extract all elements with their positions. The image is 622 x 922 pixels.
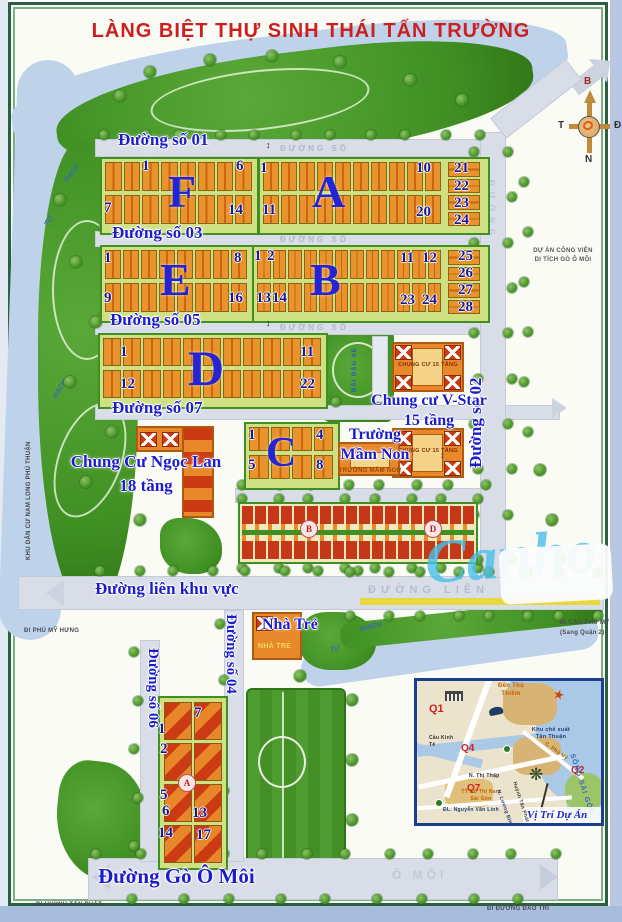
lot-number: 22 [300, 377, 315, 392]
tree-icon [276, 894, 286, 904]
tree-icon [503, 510, 513, 520]
x-motif-icon [395, 345, 412, 360]
villa-lot [366, 283, 380, 312]
villa-lot [223, 370, 241, 398]
villa-lot [141, 250, 157, 279]
dimension-mark-icon: ↕ [440, 450, 445, 460]
villa-lot [213, 283, 229, 312]
villa-lot [366, 250, 380, 279]
park-project-label-1: DỰ ÁN CÔNG VIÊN [528, 248, 598, 256]
lot-number: 12 [120, 377, 135, 392]
townhouse-row-badge: B [300, 520, 318, 538]
villa-lot [283, 370, 301, 398]
lot-number: 10 [416, 161, 431, 176]
villa-lot [389, 162, 405, 191]
villa-lot [217, 162, 234, 191]
tree-icon [208, 566, 218, 576]
parking-label: BÃI ĐẬU XE [352, 347, 360, 392]
lot-number: 11 [262, 203, 276, 218]
lot-number: 11 [300, 345, 314, 360]
villa-lot [103, 338, 121, 366]
villa-lot [198, 162, 215, 191]
villa-lot [353, 162, 369, 191]
nha-tre-caption: NHÀ TRẺ [258, 642, 291, 651]
road-lien-label: Đường liên khu vực [95, 579, 239, 599]
villa-lot [195, 283, 211, 312]
exit-cau-phu-my-label: ĐI CẦU PHÚ MỸ [560, 620, 610, 628]
tree-icon [506, 849, 516, 859]
exit-phu-my-hung-label: ĐI PHÚ MỸ HƯNG [24, 628, 79, 636]
compass-north-label: B [584, 76, 591, 87]
lot-number: 13 [256, 291, 271, 306]
exit-arrow-go-east [540, 864, 558, 890]
road-05-label: Đường số 05 [110, 310, 200, 330]
tree-icon [417, 894, 427, 904]
villa-lot [164, 702, 192, 740]
lot-number: 2 [267, 249, 275, 264]
inset-title: Vị Trí Dự Án [527, 809, 587, 821]
road-go-o-moi-label: Đường Gò Ô Môi [98, 864, 255, 889]
villa-lot [123, 283, 139, 312]
villa-lot [143, 338, 161, 366]
block-letter: C [266, 432, 296, 474]
compass-west-label: T [558, 120, 564, 131]
lot-number: 8 [234, 251, 242, 266]
tree-icon [370, 563, 380, 573]
villa-lot [124, 162, 141, 191]
inset-location-map: ★ ❋ Q1 Q4 Q7 Q2 Đền Thủ Thiêm Khu chế xu… [414, 678, 604, 826]
block-letter: F [168, 169, 196, 215]
villa-lot [281, 195, 297, 224]
inset-node-icon [503, 745, 511, 753]
tree-icon [415, 567, 425, 577]
x-motif-icon [395, 375, 412, 390]
lot-number: 1 [260, 161, 268, 176]
sports-field-line [282, 692, 284, 860]
mam-non-caption: TRƯỜNG MẦM NON [330, 468, 410, 476]
lot-number: 7 [104, 201, 112, 216]
tree-icon [400, 130, 410, 140]
inset-district-q1: Q1 [429, 703, 444, 715]
tree-icon [454, 611, 464, 621]
exit-cau-phu-my-sub: (Sang Quận 2) [560, 630, 605, 638]
tree-icon [133, 696, 143, 706]
nha-tre-label: Nhà Trẻ [262, 616, 318, 634]
tree-icon [507, 374, 517, 384]
tree-icon [325, 130, 335, 140]
tree-icon [443, 480, 453, 490]
villa-lot [283, 338, 301, 366]
tree-icon [469, 894, 479, 904]
dimension-mark-icon: ↕ [266, 318, 271, 328]
ngoc-lan-building-wing [182, 426, 214, 518]
villa-lot [198, 195, 215, 224]
villa-lot [381, 283, 395, 312]
villa-lot [389, 195, 405, 224]
tree-icon [415, 611, 425, 621]
road-c-south [235, 488, 488, 503]
lot-number: 12 [422, 251, 437, 266]
tree-icon [168, 566, 178, 576]
road-04-label: Đường số 04 [222, 614, 239, 694]
villa-block-a: A110112021222324 [258, 157, 490, 235]
tree-icon [344, 480, 354, 490]
v-star-label: Chung cư V-Star [366, 392, 492, 410]
road-01-surface-label: ĐƯỜNG SỐ [280, 144, 349, 153]
lot-number: 26 [458, 266, 473, 281]
tree-icon [384, 567, 394, 577]
villa-lot [288, 250, 302, 279]
exit-arrow-west [46, 580, 64, 606]
compass: B N T Đ [566, 88, 614, 166]
mam-non-label-1: Trường [330, 426, 420, 444]
villa-lot [263, 338, 281, 366]
ngoc-lan-label: Chung Cư Ngọc Lan [66, 452, 226, 472]
villa-block-a-south: A71256131417 [158, 696, 228, 870]
mam-non-label-2: Mầm Non [322, 446, 428, 464]
lot-number: 2 [160, 742, 168, 757]
v-star-building-caption: CHUNG CƯ 15 TẦNG [388, 362, 468, 369]
dimension-mark-icon: ↕ [266, 140, 271, 150]
lot-number: 7 [194, 706, 202, 721]
inset-project-tree-icon: ❋ [529, 765, 543, 785]
villa-lot [124, 195, 141, 224]
ngoc-lan-floors-label: 18 tầng [66, 476, 226, 496]
lot-number: 1 [104, 251, 112, 266]
townhouse-roof-row [242, 506, 474, 524]
block-letter-badge: A [178, 774, 196, 792]
lot-number: 14 [228, 203, 243, 218]
lot-number: 14 [272, 291, 287, 306]
villa-lot [194, 743, 222, 781]
road-07-label: Đường số 07 [112, 398, 202, 418]
villa-lot [123, 250, 139, 279]
lot-number: 13 [192, 806, 207, 821]
tree-icon [423, 849, 433, 859]
block-letter: A [312, 169, 345, 215]
road-01-label: Đường số 01 [118, 130, 208, 150]
park-project-label-2: DI TÍCH GÒ Ô MÔI [528, 257, 598, 265]
lot-number: 28 [458, 300, 473, 315]
tree-icon [313, 566, 323, 576]
block-letter: D [188, 343, 224, 393]
villa-lot [243, 370, 261, 398]
x-motif-icon [444, 461, 461, 476]
villa-lot [141, 283, 157, 312]
lot-number: 27 [458, 283, 473, 298]
lot-number: 25 [458, 249, 473, 264]
tree-icon [133, 793, 143, 803]
inset-district-q4: Q4 [461, 743, 474, 754]
villa-lot [353, 195, 369, 224]
lot-row [263, 195, 441, 224]
tree-icon [224, 894, 234, 904]
site-plan-map: LÀNG BIỆT THỰ SINH THÁI TẤN TRƯỜNG ĐƯỜNG… [0, 0, 622, 922]
block-letter: E [160, 257, 191, 303]
lot-number: 23 [454, 196, 469, 211]
inset-label-cau-kinh-te: Cầu Kinh Tẻ [429, 735, 457, 748]
lot-number: 11 [400, 251, 414, 266]
villa-lot [103, 370, 121, 398]
x-motif-icon [162, 432, 179, 447]
lot-number: 1 [248, 428, 256, 443]
lot-number: 21 [454, 161, 469, 176]
exit-dao-tri-label: ĐI ĐƯỜNG ĐÀO TRÍ [487, 906, 549, 914]
lot-number: 4 [316, 428, 324, 443]
villa-lot [195, 250, 211, 279]
lot-number: 9 [104, 291, 112, 306]
exit-huynh-tan-phat-label: ĐI HUỲNH TẤN PHÁT [36, 902, 102, 910]
road-go-surface-label: Ô MÔI [392, 868, 447, 882]
inset-label-den: Đền Thủ Thiêm [493, 683, 529, 699]
villa-lot [350, 283, 364, 312]
compass-east-label: Đ [614, 120, 621, 131]
lot-number: 24 [422, 293, 437, 308]
inset-label-thi-thap: N. Thị Thập [469, 773, 500, 780]
lot-number: 14 [158, 826, 173, 841]
lot-number: 23 [400, 293, 415, 308]
tree-icon [340, 849, 350, 859]
villa-lot [371, 162, 387, 191]
villa-lot [105, 162, 122, 191]
villa-lot [142, 195, 159, 224]
villa-lot [223, 338, 241, 366]
watermark-blot [499, 543, 614, 605]
road-06-label: Đường số 06 [144, 648, 161, 728]
x-motif-icon [444, 431, 461, 446]
lot-number: 1 [142, 159, 150, 174]
compass-south-label: N [585, 154, 592, 165]
villa-lot [243, 338, 261, 366]
lot-number: 22 [454, 179, 469, 194]
road-05-surface-label: ĐƯỜNG SỐ [280, 323, 349, 332]
lot-number: 6 [236, 159, 244, 174]
lot-number: 24 [454, 213, 469, 228]
lot-row [263, 162, 441, 191]
inset-label-kcx: Khu chế xuất Tân Thuận [529, 727, 573, 741]
villa-lot [143, 370, 161, 398]
inset-label-nvl: ĐL. Nguyễn Văn Linh [443, 807, 499, 814]
tree-icon [384, 611, 394, 621]
lot-number: 20 [416, 205, 431, 220]
inset-node-icon [435, 799, 443, 807]
villa-lot [163, 338, 181, 366]
lot-number: 17 [196, 828, 211, 843]
villa-block-b: B1211121314232425262728 [252, 245, 490, 323]
tree-icon [257, 849, 267, 859]
lot-number: 1 [120, 345, 128, 360]
inset-ship-icon [488, 706, 503, 717]
lot-number: 1 [254, 249, 262, 264]
lot-number: 16 [228, 291, 243, 306]
tree-icon [503, 238, 513, 248]
tree-icon [216, 130, 226, 140]
villa-lot [381, 250, 395, 279]
villa-lot [288, 283, 302, 312]
x-motif-icon [140, 432, 157, 447]
lot-number: 5 [160, 788, 168, 803]
villa-lot [213, 250, 229, 279]
villa-lot [350, 250, 364, 279]
lot-number: 5 [248, 458, 256, 473]
inset-temple-icon [445, 691, 463, 701]
v-star-building-1: CHUNG CƯ 15 TẦNG [392, 342, 464, 392]
villa-lot [263, 370, 281, 398]
villa-lot [163, 370, 181, 398]
road-03-label: Đường số 03 [112, 223, 202, 243]
villa-lot [371, 195, 387, 224]
exit-arrow-east-road07 [552, 398, 567, 418]
lot-number: 6 [162, 804, 170, 819]
villa-lot [281, 162, 297, 191]
page-title: LÀNG BIỆT THỰ SINH THÁI TẤN TRƯỜNG [0, 20, 622, 43]
x-motif-icon [444, 375, 461, 390]
block-letter: B [310, 257, 341, 303]
nam-long-label: KHU DÂN CƯ NAM LONG PHÚ THUẬN [26, 441, 34, 560]
x-motif-icon [444, 345, 461, 360]
road-03-surface-label: ĐƯỜNG SỐ [280, 235, 349, 244]
